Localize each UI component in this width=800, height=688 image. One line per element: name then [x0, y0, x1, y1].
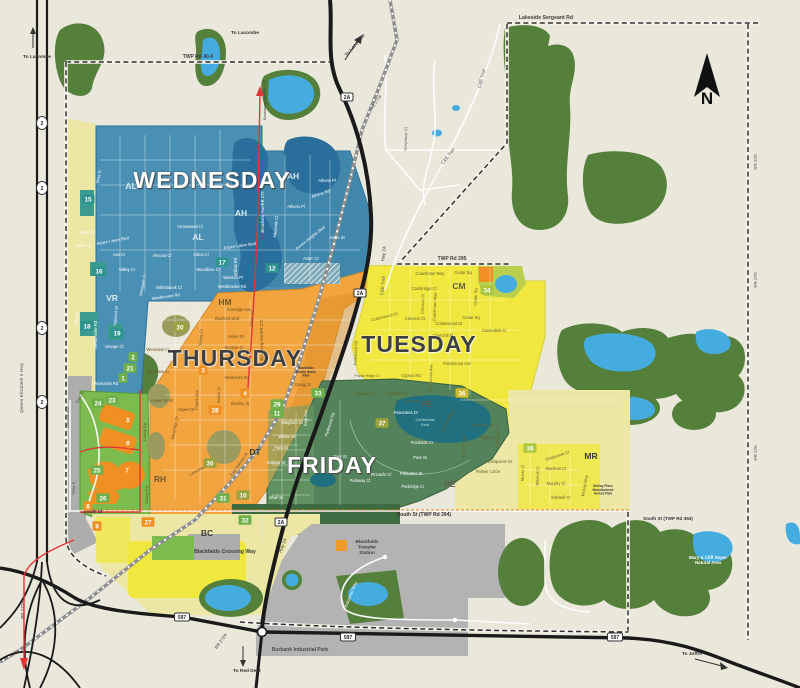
- zone-badge-26: 26: [97, 493, 110, 503]
- day-zone-label-tuesday: TUESDAY: [361, 331, 477, 357]
- svg-text:38: 38: [526, 445, 534, 452]
- area-code-label: AL: [192, 232, 203, 242]
- svg-text:2A: 2A: [357, 291, 364, 297]
- street-label: Indiana St: [267, 460, 286, 465]
- street-label: Park St: [274, 445, 288, 450]
- svg-text:24: 24: [94, 400, 102, 407]
- street-label: Leung Rd: [144, 485, 150, 504]
- street-label: Palisades St: [400, 471, 424, 476]
- street-label: Vintage Cl: [105, 344, 124, 349]
- zone-badge-21: 21: [124, 363, 137, 373]
- street-label: Shull St: [269, 495, 284, 500]
- road-label: South St (TWP Rd 394): [643, 516, 693, 521]
- highway-shield-2: 2: [37, 117, 48, 130]
- street-label: Cedar Sq: [454, 270, 472, 275]
- zone-badge-38: 38: [524, 443, 537, 453]
- map-canvas: N Vista TrAnna ClArlen ClAspen Lakes Blv…: [0, 0, 800, 688]
- area-code-label: RH: [154, 474, 166, 484]
- zone-badge-23: 23: [106, 395, 119, 405]
- street-label: Almond Cr: [152, 253, 172, 258]
- street-label: Valley Cr: [119, 267, 136, 272]
- street-label: Cavendish Cl: [482, 328, 506, 333]
- street-label: Arlen Cl: [77, 243, 92, 248]
- street-label: East Ave: [303, 409, 309, 426]
- svg-text:16: 16: [95, 268, 103, 275]
- street-label: Waghorn St: [281, 420, 303, 425]
- svg-text:20: 20: [176, 324, 184, 331]
- zone-badge-32: 32: [239, 515, 252, 525]
- street-label: Stanley St: [231, 401, 251, 406]
- zone-badge-29: 29: [271, 399, 284, 409]
- street-label: Westview Cr: [147, 369, 171, 374]
- street-label: Cottonwood Dr: [435, 321, 463, 326]
- street-label: Panorama Dr: [394, 410, 419, 415]
- day-zone-label-wednesday: WEDNESDAY: [133, 167, 290, 193]
- road-label: Queen Elizabeth II Hwy: [19, 362, 25, 413]
- street-label: Pondside Cr: [411, 440, 434, 445]
- street-label: Womacks Rd: [225, 375, 250, 380]
- zone-badge-8: 8: [84, 501, 93, 511]
- street-label: Eastpointe Dr: [488, 459, 513, 464]
- area-code-label: CM: [452, 281, 465, 291]
- svg-text:2A: 2A: [278, 520, 285, 526]
- svg-text:11: 11: [274, 410, 281, 417]
- street-label: Woodbine Cl: [196, 267, 219, 272]
- street-label: Maclean Cr: [546, 466, 568, 471]
- road-label: TWP Rd 40-0: [183, 54, 214, 60]
- svg-text:26: 26: [99, 495, 107, 502]
- area-code-label: PE: [421, 399, 433, 409]
- direction-label: To Lacombe: [23, 54, 51, 60]
- highway-shield-2: 2: [37, 182, 48, 195]
- street-label: Broadway Ave/RR 272: [260, 191, 265, 233]
- zone-badge-20: 20: [174, 322, 187, 332]
- street-label: Parkway Dr: [495, 426, 501, 448]
- street-label: Westbrooke Rd: [218, 284, 247, 289]
- svg-text:2: 2: [41, 326, 44, 332]
- street-label: Broadway Ave: [259, 515, 265, 542]
- zone-badge-11: 11: [271, 408, 284, 418]
- street-label: Piper Cl: [481, 435, 496, 440]
- street-label: Crimson Ct: [405, 316, 426, 321]
- svg-text:17: 17: [218, 259, 226, 266]
- road-label: Duncan Ave: [65, 405, 70, 427]
- svg-text:37: 37: [378, 420, 386, 427]
- area-code-label: MR: [584, 451, 597, 461]
- street-label: Pinewood Cl: [355, 391, 378, 396]
- street-label: Westview Cr: [147, 347, 171, 352]
- zone-badge-24: 24: [92, 398, 105, 408]
- svg-text:9: 9: [95, 523, 99, 530]
- svg-text:597: 597: [611, 635, 620, 641]
- highway-shield-2: 2: [37, 322, 48, 335]
- street-label: Cyprus Rd: [401, 373, 421, 378]
- street-label: Parkwood Rd: [353, 340, 359, 365]
- road-label: RR 270: [753, 154, 758, 170]
- street-label: Mitchell Cr: [551, 495, 571, 500]
- highway-shield-597: 597: [608, 633, 623, 641]
- svg-text:32: 32: [241, 517, 249, 524]
- zone-badge-27: 27: [142, 517, 155, 527]
- zone-badge-19: 19: [111, 328, 124, 338]
- street-label: Prairie Ridge Cl: [354, 374, 379, 378]
- zone-badge-2: 2: [129, 352, 138, 362]
- road-label: Broadway Ave/RR 272: [262, 79, 267, 120]
- street-label: Pioneer Ave: [461, 435, 467, 458]
- svg-text:12: 12: [268, 265, 276, 272]
- svg-text:23: 23: [108, 397, 116, 404]
- svg-text:10: 10: [239, 492, 247, 499]
- street-label: Arrowwood Cl: [177, 224, 203, 229]
- svg-text:597: 597: [344, 635, 353, 641]
- highway-shield-2: 2: [37, 396, 48, 409]
- zone-badge-33: 33: [312, 388, 325, 398]
- street-label: Pinetree Cl: [473, 423, 493, 428]
- zone-badge-31: 31: [217, 493, 230, 503]
- svg-text:33: 33: [314, 390, 322, 397]
- svg-text:27: 27: [144, 519, 152, 526]
- zone-badge-30: 30: [204, 458, 217, 468]
- mckay-place-label: McKay PlaceManufacturedHomes Park: [593, 484, 614, 496]
- zone-badge-7: 7: [123, 465, 132, 475]
- street-label: Pine Cr: [406, 399, 420, 404]
- svg-text:7: 7: [125, 467, 129, 474]
- street-label: Plumtree Cr: [386, 391, 408, 396]
- transfer-station-icon: [336, 540, 347, 551]
- zone-badge-10: 10: [237, 490, 250, 500]
- zone-badge-25: 25: [91, 465, 104, 475]
- street-label: Cedar Sq: [462, 315, 480, 320]
- street-label: Willow Rd: [233, 257, 238, 276]
- street-label: Coachman Way: [431, 291, 437, 321]
- direction-label: To Lacombe: [231, 30, 259, 36]
- zone-badge-1: 1: [119, 373, 128, 383]
- road-label: RR 270: [753, 272, 758, 288]
- street-label: Aspen Cl: [216, 386, 222, 403]
- blackfalds-collection-zone-map: N Vista TrAnna ClArlen ClAspen Lakes Blv…: [0, 0, 800, 688]
- street-label: Cedar Sq: [473, 287, 479, 305]
- highway-shield-2A: 2A: [354, 289, 366, 297]
- svg-text:36: 36: [458, 390, 466, 397]
- road-label: Lakeside Sergeant Rd: [519, 15, 573, 21]
- area-code-label: AH: [235, 208, 247, 218]
- direction-label: To Red Deer: [233, 668, 261, 674]
- svg-text:18: 18: [83, 323, 91, 330]
- street-label: Sunridge Ave: [227, 307, 252, 312]
- area-code-label: DT: [249, 447, 261, 457]
- street-label: Adina Cl: [193, 252, 209, 257]
- zone-badge-15: 15: [82, 194, 95, 204]
- svg-text:19: 19: [113, 330, 121, 337]
- day-zone-label-friday: FRIDAY: [287, 452, 377, 478]
- road-label: Blackfalds Crossing Way: [194, 549, 256, 555]
- road-label: RR 270: [753, 445, 758, 461]
- street-label: Whitebrook Cl: [156, 285, 182, 290]
- area-code-label: BC: [201, 528, 213, 538]
- area-code-label: PE: [444, 479, 456, 489]
- road-label: Greystone Ct: [403, 126, 409, 151]
- highway-shield-597: 597: [175, 613, 190, 621]
- hatched-area: [284, 263, 340, 284]
- street-label: Murphy Cl: [547, 481, 566, 486]
- street-label: Leung Rd: [142, 422, 148, 441]
- svg-text:2: 2: [41, 400, 44, 406]
- zone-badge-16: 16: [93, 266, 106, 276]
- road-label: South St (TWP Rd 394): [397, 512, 451, 518]
- svg-text:34: 34: [483, 287, 491, 294]
- street-label: Wilson St: [278, 434, 296, 439]
- street-label: Athens Pl: [287, 204, 305, 209]
- zone-badge-12: 12: [266, 263, 279, 273]
- svg-text:2: 2: [41, 121, 44, 127]
- street-label: Palmer Circle: [476, 469, 501, 474]
- street-label: Morris Cl: [520, 465, 526, 482]
- svg-text:2A: 2A: [344, 95, 351, 101]
- svg-text:2: 2: [41, 186, 44, 192]
- street-label: Womacks Rd: [94, 381, 119, 386]
- street-label: Coachman Way: [416, 271, 446, 276]
- street-label: Crimson Cl: [420, 294, 426, 314]
- area-code-label: HM: [218, 297, 231, 307]
- road-label: Vista Tr: [71, 480, 76, 494]
- zone-badge-4: 4: [241, 388, 250, 398]
- street-label: Aspen Dr: [177, 407, 195, 412]
- street-label: Westbrooke Rd: [93, 320, 98, 349]
- svg-text:30: 30: [206, 460, 214, 467]
- day-zone-label-thursday: THURSDAY: [168, 345, 302, 371]
- highway-shield-2A: 2A: [341, 93, 353, 101]
- street-label: Parkridge Cr: [402, 484, 426, 489]
- highway-shield-597: 597: [341, 633, 356, 641]
- svg-text:21: 21: [126, 365, 134, 372]
- zone-badge-9: 9: [93, 521, 102, 531]
- street-label: Ponderosa Ave: [428, 363, 434, 392]
- svg-text:28: 28: [211, 407, 219, 414]
- street-label: Ponderosa Ave: [443, 361, 471, 366]
- street-label: Poplar Ave: [194, 389, 200, 410]
- zone-badge-37: 37: [376, 418, 389, 428]
- highway-shield-2A: 2A: [275, 518, 287, 526]
- street-label: Ava Cr: [113, 252, 126, 257]
- svg-text:29: 29: [273, 401, 281, 408]
- direction-label: To Joffre: [682, 651, 702, 657]
- svg-text:4: 4: [243, 390, 247, 397]
- street-label: Aztec St: [329, 235, 345, 240]
- street-label: Athens Pl: [318, 178, 336, 183]
- zone-badge-18: 18: [81, 321, 94, 331]
- zone-badge-28: 28: [209, 405, 222, 415]
- svg-text:31: 31: [219, 495, 227, 502]
- street-label: Stanford Blvd: [215, 316, 240, 321]
- svg-text:25: 25: [93, 467, 101, 474]
- roundabout: [258, 628, 267, 637]
- street-label: Silver Dr: [228, 334, 244, 339]
- zone-badge-17: 17: [216, 257, 229, 267]
- area-code-label: VR: [106, 293, 118, 303]
- street-label: Park St: [413, 455, 427, 460]
- svg-text:15: 15: [84, 196, 92, 203]
- industrial-park-label: Burbank Industrial Park: [272, 647, 329, 653]
- street-label: Aspen Dr W: [151, 398, 173, 403]
- street-label: Anna Cl: [80, 230, 95, 235]
- svg-text:597: 597: [178, 615, 187, 621]
- svg-text:2: 2: [131, 354, 135, 361]
- svg-text:8: 8: [86, 503, 90, 510]
- svg-text:1: 1: [121, 375, 125, 382]
- north-label: N: [701, 89, 713, 108]
- street-label: Cambridge Cl: [411, 286, 436, 291]
- street-label: Parkway Cl: [350, 478, 371, 483]
- street-label: Aztec Cr: [303, 256, 319, 261]
- zone-badge-36: 36: [456, 388, 469, 398]
- street-label: Gregg St: [295, 382, 312, 387]
- road-label: TWP Rd 395: [438, 256, 467, 262]
- road-label: RR 272A: [20, 601, 25, 619]
- zone-gray-small: [188, 534, 240, 560]
- zone-badge-34: 34: [481, 285, 494, 295]
- street-label: Mitchell Cl: [535, 466, 541, 485]
